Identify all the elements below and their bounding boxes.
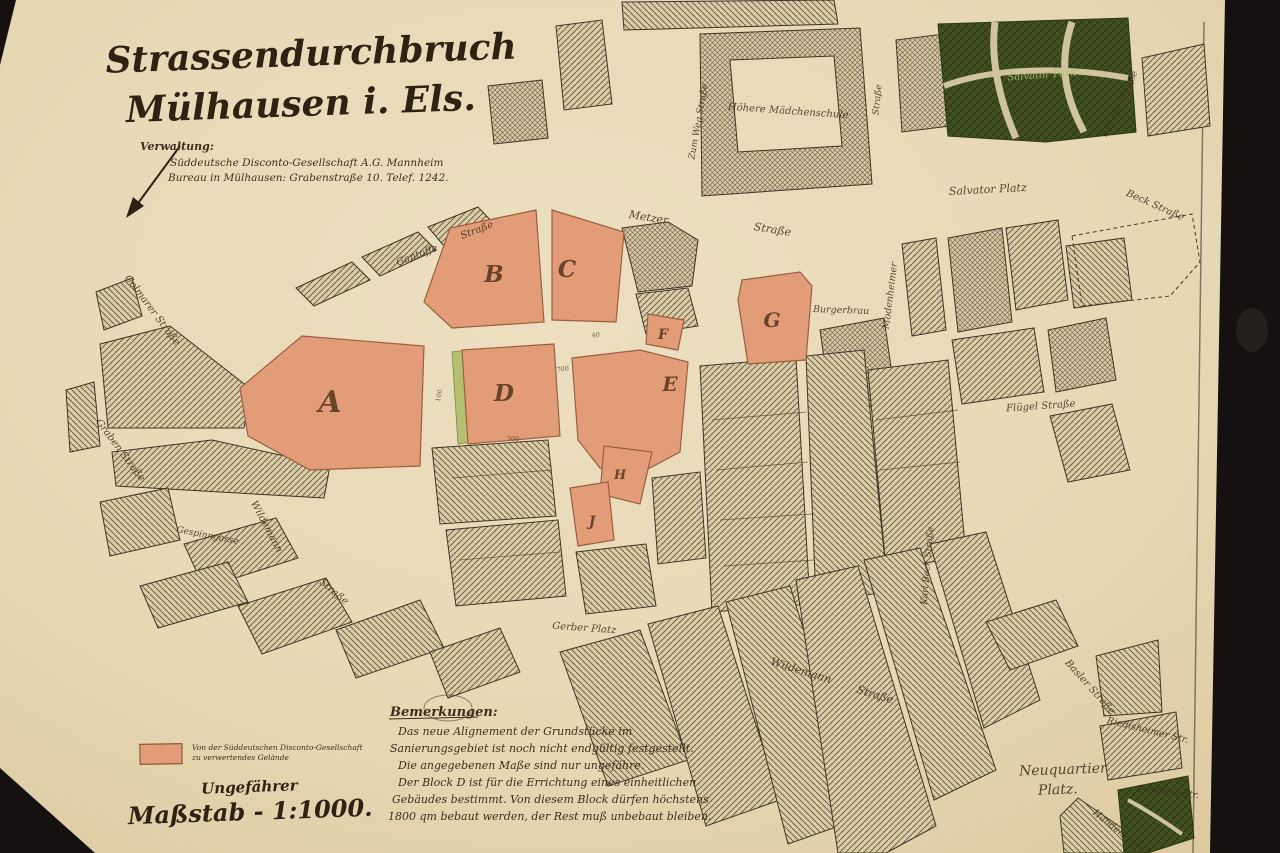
block-letter: B	[483, 261, 503, 288]
measurement-number: 40	[591, 330, 600, 339]
legend-swatch	[140, 744, 182, 765]
photo-reflection	[1236, 308, 1268, 352]
place-label: Neuquartier	[1018, 760, 1108, 779]
block-letter: D	[493, 380, 514, 407]
block-letter: G	[763, 308, 780, 332]
building	[700, 358, 810, 612]
photographed-map: GantoffeStraßeMetzerStraßeColmarer Straß…	[0, 0, 1280, 853]
remarks-line: Die angegebenen Maße sind nur ungefähre.	[397, 759, 644, 772]
place-label: Platz.	[1037, 781, 1078, 798]
building	[446, 520, 566, 606]
block-letter: E	[661, 372, 678, 396]
building	[652, 472, 706, 564]
block-letter: A	[315, 385, 341, 420]
measurement-number: 700	[556, 364, 569, 374]
scale-line-1: Ungefährer	[201, 776, 299, 797]
block-letter: F	[657, 327, 669, 343]
remarks-line: Das neue Alignement der Grundstücke im	[397, 725, 632, 738]
administration-line-2: Bureau in Mülhausen: Grabenstraße 10. Te…	[167, 172, 449, 184]
building	[952, 328, 1044, 404]
administration-heading: Verwaltung:	[140, 140, 214, 153]
building	[1066, 238, 1132, 308]
building	[948, 228, 1012, 332]
building	[432, 440, 556, 524]
measurement-number: 700	[507, 435, 520, 443]
remarks-line: 1800 qm bebaut werden, der Rest muß unbe…	[388, 810, 712, 823]
building	[1142, 44, 1210, 136]
administration-line-1: Süddeutsche Disconto-Gesellschaft A.G. M…	[170, 157, 444, 169]
building	[576, 544, 656, 614]
building	[556, 20, 612, 110]
building	[66, 382, 100, 452]
remarks-line: Sanierungsgebiet ist noch nicht endgülti…	[390, 742, 694, 755]
legend-line-1: Von der Süddeutschen Disconto-Gesellscha…	[192, 743, 364, 752]
building	[488, 80, 548, 144]
remarks-line: Gebäudes bestimmt. Von diesem Block dürf…	[392, 793, 709, 806]
block-letter: H	[613, 468, 627, 483]
building	[1048, 318, 1116, 392]
block-letter: C	[558, 256, 577, 283]
map-canvas: GantoffeStraßeMetzerStraßeColmarer Straß…	[0, 0, 1280, 853]
legend-line-2: zu verwertendes Gelände	[191, 753, 290, 762]
remarks-line: Der Block D ist für die Errichtung eines…	[397, 776, 696, 789]
building	[868, 360, 966, 570]
building	[1006, 220, 1068, 310]
street-label: Burgerbrau	[812, 304, 870, 317]
